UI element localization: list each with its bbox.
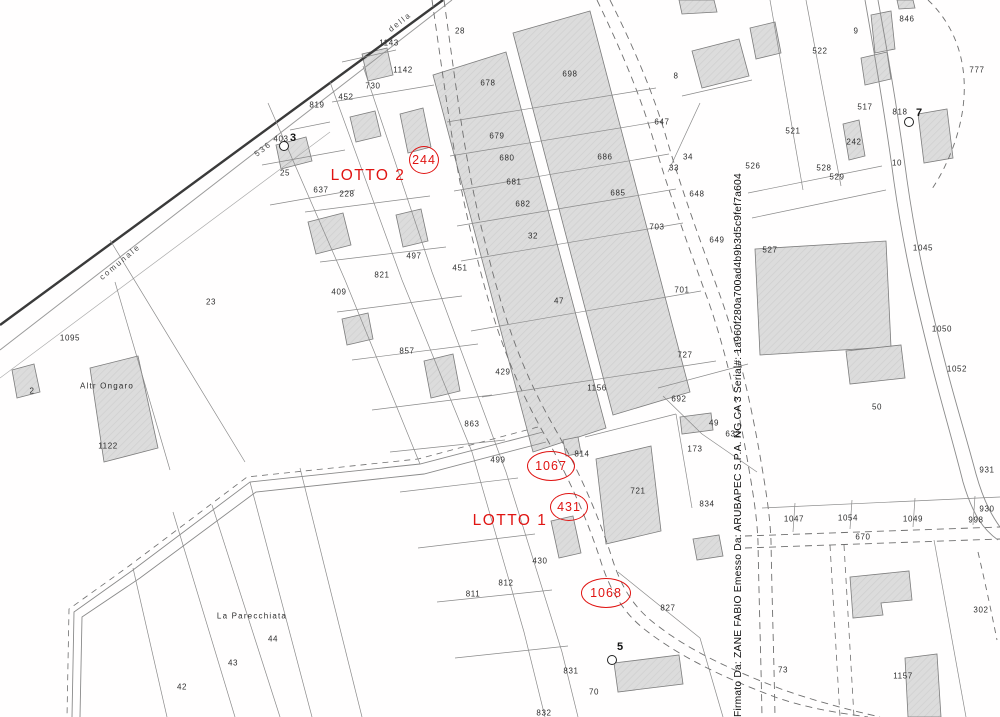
survey-point-icon	[904, 117, 914, 127]
parcel-label: 1054	[838, 514, 858, 523]
parcel-label: 497	[406, 252, 421, 261]
parcel-label: 70	[589, 688, 599, 697]
parcel-label: 517	[857, 103, 872, 112]
lotto-label: LOTTO 2	[331, 167, 406, 185]
parcel-label: 1142	[393, 66, 413, 75]
parcel-label: 1143	[379, 39, 399, 48]
parcel-label: 528	[816, 164, 831, 173]
parcel-label: 1049	[903, 515, 923, 524]
lotto-label: LOTTO 1	[473, 512, 548, 530]
road-name-label: della	[387, 10, 414, 34]
parcel-label: 9	[853, 27, 858, 36]
parcel-label: 429	[495, 368, 510, 377]
parcel-label: 44	[268, 635, 278, 644]
place-label: La Parecchiata	[217, 612, 287, 621]
parcel-label: 527	[762, 246, 777, 255]
parcel-label: 10	[892, 159, 902, 168]
parcel-label: 42	[177, 683, 187, 692]
cadastral-map: 2811431142730452819403256372286786986796…	[0, 0, 1000, 717]
parcel-label: 831	[563, 667, 578, 676]
parcel-label: 670	[855, 533, 870, 542]
parcel-label: 682	[515, 200, 530, 209]
parcel-label: 827	[660, 604, 675, 613]
parcel-label: 931	[979, 466, 994, 475]
parcel-label: 814	[574, 450, 589, 459]
parcel-label: 648	[689, 190, 704, 199]
parcel-label: 777	[969, 66, 984, 75]
digital-signature-text: Firmato Da: ZANE FABIO Emesso Da: ARUBAP…	[733, 173, 744, 717]
parcel-label: 819	[309, 101, 324, 110]
parcel-label: 812	[498, 579, 513, 588]
road-name-label: 536	[253, 139, 274, 158]
parcel-label: 721	[630, 487, 645, 496]
parcel-label: 686	[597, 153, 612, 162]
parcel-label: 33	[669, 164, 679, 173]
survey-point-number: 5	[617, 641, 623, 653]
parcel-label: 522	[812, 47, 827, 56]
parcel-label: 681	[506, 178, 521, 187]
parcel-label: 50	[872, 403, 882, 412]
parcel-label: 1045	[913, 244, 933, 253]
red-parcel-number: 1068	[590, 586, 622, 600]
parcel-label: 521	[785, 127, 800, 136]
parcel-label: 811	[466, 590, 481, 599]
parcel-label: 49	[709, 419, 719, 428]
parcel-label: 1157	[893, 672, 913, 681]
red-parcel-number: 431	[557, 500, 581, 514]
survey-point-number: 7	[916, 107, 922, 119]
parcel-label: 8	[673, 72, 678, 81]
parcel-label: 649	[709, 236, 724, 245]
parcel-label: 1156	[587, 384, 607, 393]
parcel-label: 430	[532, 557, 547, 566]
parcel-label: 834	[699, 500, 714, 509]
survey-point-number: 3	[290, 132, 296, 144]
parcel-label: 701	[674, 286, 689, 295]
parcel-label: 43	[228, 659, 238, 668]
parcel-label: 451	[452, 264, 467, 273]
parcel-label: 1050	[932, 325, 952, 334]
parcel-label: 730	[365, 82, 380, 91]
parcel-label: 703	[649, 223, 664, 232]
parcel-label: 73	[778, 666, 788, 675]
parcel-label: 685	[610, 189, 625, 198]
parcel-label: 680	[499, 154, 514, 163]
survey-point-icon	[607, 655, 617, 665]
red-parcel-number: 244	[412, 153, 436, 167]
parcel-label: 452	[338, 93, 353, 102]
parcel-label: 998	[968, 516, 983, 525]
parcel-label: 242	[846, 138, 861, 147]
parcel-label: 1047	[784, 515, 804, 524]
parcel-label: 25	[280, 169, 290, 178]
road-name-label: comunale	[98, 242, 143, 281]
parcel-label: 727	[677, 351, 692, 360]
parcel-label: 1052	[947, 365, 967, 374]
parcel-label: 228	[339, 190, 354, 199]
parcel-label: 679	[489, 132, 504, 141]
parcel-label: 698	[562, 70, 577, 79]
parcel-label: 28	[455, 27, 465, 36]
survey-point-icon	[279, 141, 289, 151]
parcel-label: 47	[554, 297, 564, 306]
parcel-label: 930	[979, 505, 994, 514]
red-parcel-number: 1067	[535, 459, 567, 473]
parcel-label: 409	[331, 288, 346, 297]
parcel-label: 302	[973, 606, 988, 615]
parcel-label: 1095	[60, 334, 80, 343]
parcel-label: 857	[399, 347, 414, 356]
parcel-label: 1122	[98, 442, 118, 451]
parcel-label: 173	[687, 445, 702, 454]
parcel-label: 647	[654, 118, 669, 127]
parcel-label: 2	[29, 387, 34, 396]
parcel-label: 499	[490, 456, 505, 465]
parcel-label: 32	[528, 232, 538, 241]
parcel-label: 692	[671, 395, 686, 404]
parcel-label: 863	[464, 420, 479, 429]
parcel-label: 637	[313, 186, 328, 195]
parcel-label: 529	[829, 173, 844, 182]
map-labels-layer: 2811431142730452819403256372286786986796…	[0, 0, 1000, 717]
parcel-label: 846	[899, 15, 914, 24]
parcel-label: 526	[745, 162, 760, 171]
parcel-label: 832	[536, 709, 551, 717]
parcel-label: 818	[892, 108, 907, 117]
parcel-label: 34	[683, 153, 693, 162]
parcel-label: 821	[374, 271, 389, 280]
place-label: Altr Ongaro	[80, 382, 134, 391]
parcel-label: 678	[480, 79, 495, 88]
parcel-label: 23	[206, 298, 216, 307]
